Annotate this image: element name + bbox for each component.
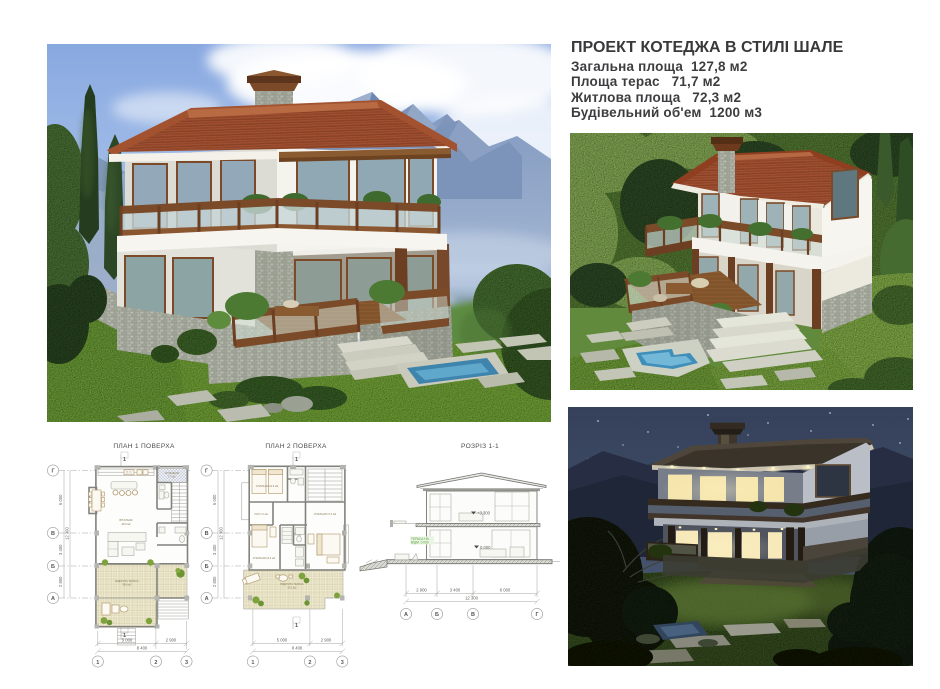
svg-text:1: 1: [251, 660, 254, 666]
svg-text:1: 1: [96, 660, 99, 666]
svg-text:ВІДКРИТА ТЕРАСА: ВІДКРИТА ТЕРАСА: [280, 582, 304, 586]
svg-text:1: 1: [295, 623, 298, 629]
svg-text:А: А: [205, 596, 209, 602]
svg-text:48.0 м2: 48.0 м2: [122, 522, 132, 526]
svg-text:ХОЛ 7.2 м2: ХОЛ 7.2 м2: [254, 512, 268, 516]
svg-text:38.6 м2: 38.6 м2: [123, 583, 133, 587]
svg-text:2 800: 2 800: [212, 576, 217, 587]
svg-text:2 900: 2 900: [416, 588, 427, 593]
svg-text:А: А: [51, 596, 55, 602]
svg-text:2: 2: [308, 660, 311, 666]
svg-text:12 300: 12 300: [465, 596, 478, 601]
svg-text:В: В: [205, 531, 209, 537]
svg-text:8 400: 8 400: [137, 646, 148, 651]
svg-text:СПАЛЬНЯ 12.9 м2: СПАЛЬНЯ 12.9 м2: [256, 484, 279, 488]
svg-text:33.1 м2: 33.1 м2: [288, 586, 298, 590]
svg-text:3 400: 3 400: [212, 544, 217, 555]
svg-text:1: 1: [123, 457, 126, 463]
svg-text:РОЗРІЗ 1-1: РОЗРІЗ 1-1: [461, 443, 499, 450]
svg-text:3: 3: [341, 660, 344, 666]
svg-text:СПАЛЬНЯ 13.4 м2: СПАЛЬНЯ 13.4 м2: [253, 556, 276, 560]
svg-text:8 400: 8 400: [292, 646, 303, 651]
svg-text:ВІДКРИТА ТЕРАСА: ВІДКРИТА ТЕРАСА: [115, 579, 139, 583]
svg-text:6 000: 6 000: [500, 588, 511, 593]
svg-text:Б: Б: [435, 612, 439, 618]
svg-text:7.7 м2: 7.7 м2: [168, 475, 176, 479]
svg-text:+3.300: +3.300: [477, 511, 491, 516]
svg-text:ПЛАН 2 ПОВЕРХА: ПЛАН 2 ПОВЕРХА: [265, 443, 327, 450]
svg-text:6 000: 6 000: [58, 494, 63, 505]
svg-text:ВІДМ. 0.000: ВІДМ. 0.000: [411, 541, 429, 545]
svg-text:2 900: 2 900: [166, 638, 177, 643]
svg-text:2 800: 2 800: [58, 576, 63, 587]
svg-text:ВІТАЛЬНЯ: ВІТАЛЬНЯ: [120, 518, 133, 522]
svg-text:0.000: 0.000: [480, 545, 491, 550]
svg-text:1: 1: [295, 457, 298, 463]
svg-text:3 400: 3 400: [450, 588, 461, 593]
svg-text:2: 2: [154, 660, 157, 666]
svg-text:5 000: 5 000: [277, 638, 288, 643]
svg-text:5 000: 5 000: [122, 638, 133, 643]
svg-text:12 300: 12 300: [65, 527, 70, 540]
svg-text:Б: Б: [205, 564, 209, 570]
svg-text:В: В: [51, 531, 55, 537]
svg-text:3: 3: [185, 660, 188, 666]
svg-text:Б: Б: [51, 564, 55, 570]
svg-text:А: А: [404, 612, 408, 618]
svg-text:3 400: 3 400: [58, 544, 63, 555]
svg-text:6 000: 6 000: [212, 494, 217, 505]
svg-text:2 900: 2 900: [321, 638, 332, 643]
svg-text:12 300: 12 300: [219, 527, 224, 540]
svg-text:В: В: [471, 612, 475, 618]
svg-text:ПЛАН 1 ПОВЕРХА: ПЛАН 1 ПОВЕРХА: [113, 443, 175, 450]
svg-text:СПАЛЬНЯ 17.6 м2: СПАЛЬНЯ 17.6 м2: [314, 512, 337, 516]
svg-text:КОТЕЛЬНЯ: КОТЕЛЬНЯ: [165, 471, 179, 475]
